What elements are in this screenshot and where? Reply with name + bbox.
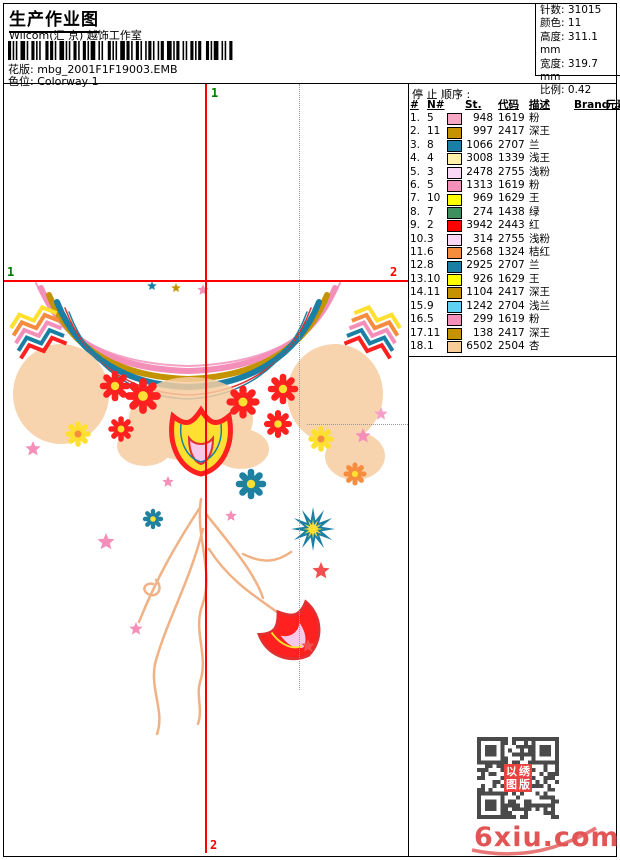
info-row: 高度: 311.1 mm	[540, 31, 620, 58]
table-row: 17.111382417深王	[410, 327, 616, 340]
table-row: 13.109261629王	[410, 273, 616, 286]
header-separator-line	[3, 83, 617, 84]
info-row: 颜色: 11	[540, 17, 620, 30]
table-row: 12.829252707兰	[410, 259, 616, 272]
watermark-swoosh	[468, 818, 604, 860]
colorway-field: 色位: Colorway 1	[8, 73, 99, 89]
table-row: 5.324782755浅粉	[410, 166, 616, 179]
center-guide-horizontal	[307, 424, 408, 425]
table-bottom-line	[408, 356, 617, 357]
table-row: 7.109691629王	[410, 192, 616, 205]
info-row: 针数: 31015	[540, 4, 620, 17]
table-row: 15.912422704浅兰	[410, 300, 616, 313]
table-row: 6.513131619粉	[410, 179, 616, 192]
table-row: 16.52991619粉	[410, 313, 616, 326]
thread-color-swatch	[447, 140, 462, 152]
table-row: 1.59481619粉	[410, 112, 616, 125]
production-worksheet: 生产作业图 Wilcom(汇 京) 越饰工作室 花版: mbg_2001F1F1…	[0, 0, 620, 860]
table-row: 11.625681324桔红	[410, 246, 616, 259]
colorway-label: 色位:	[8, 75, 34, 88]
thread-color-swatch	[447, 220, 462, 232]
info-row: 比例: 0.42	[540, 84, 620, 97]
center-guide-vertical	[299, 84, 300, 690]
start-marker-top: 1	[211, 87, 218, 99]
barcode	[8, 41, 234, 60]
thread-color-swatch	[447, 127, 462, 139]
table-row: 9.239422443红	[410, 219, 616, 232]
thread-color-swatch	[447, 261, 462, 273]
thread-color-swatch	[447, 287, 462, 299]
end-marker-right: 2	[390, 266, 397, 278]
table-row: 2.119972417深王	[410, 125, 616, 138]
thread-color-swatch	[447, 113, 462, 125]
table-header-row: #N#St.代码描述Brand元素	[410, 99, 616, 112]
horizontal-axis-line	[4, 280, 408, 282]
thread-color-swatch	[447, 207, 462, 219]
start-marker-left: 1	[7, 266, 14, 278]
thread-color-swatch	[447, 301, 462, 313]
table-row: 18.165022504杏	[410, 340, 616, 353]
thread-color-swatch	[447, 234, 462, 246]
table-row: 3.810662707兰	[410, 139, 616, 152]
colorway-value: Colorway 1	[37, 75, 98, 88]
thread-color-swatch	[447, 194, 462, 206]
thread-color-swatch	[447, 314, 462, 326]
design-info-box: 针数: 31015颜色: 11高度: 311.1 mm宽度: 319.7 mm比…	[535, 4, 620, 76]
thread-color-swatch	[447, 328, 462, 340]
end-marker-bottom: 2	[210, 839, 217, 851]
info-row: 宽度: 319.7 mm	[540, 58, 620, 85]
thread-color-swatch	[447, 341, 462, 353]
red-seal-stamp: 以绣图版	[504, 764, 532, 792]
thread-color-swatch	[447, 274, 462, 286]
thread-color-swatch	[447, 247, 462, 259]
vertical-axis-line	[205, 84, 207, 853]
table-row: 8.72741438绿	[410, 206, 616, 219]
thread-color-swatch	[447, 167, 462, 179]
stop-sequence-table: #N#St.代码描述Brand元素 1.59481619粉2.119972417…	[410, 99, 616, 353]
table-row: 14.1111042417深王	[410, 286, 616, 299]
table-row: 4.430081339浅王	[410, 152, 616, 165]
panel-divider-line	[408, 83, 409, 856]
thread-color-swatch	[447, 180, 462, 192]
qr-code: 以绣图版	[477, 737, 559, 819]
table-row: 10.33142755浅粉	[410, 233, 616, 246]
thread-color-swatch	[447, 153, 462, 165]
